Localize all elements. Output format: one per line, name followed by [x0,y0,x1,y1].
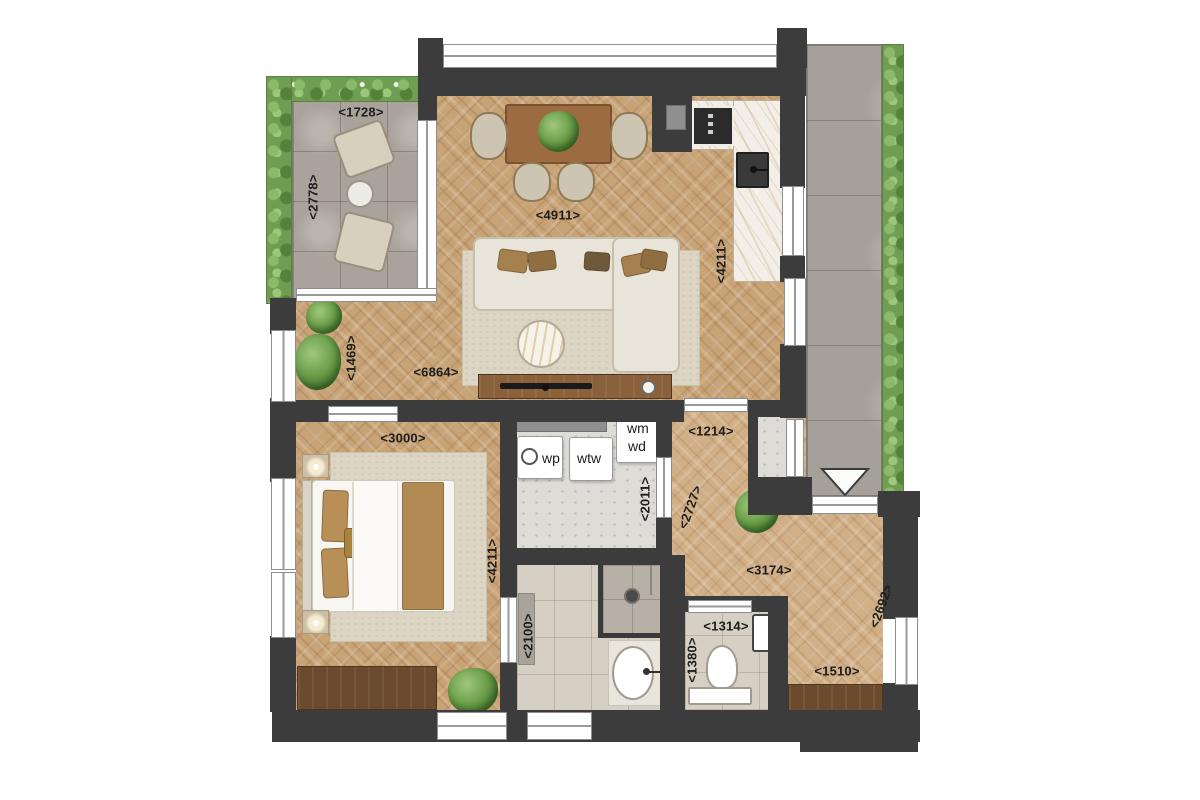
storage-door [786,419,804,477]
kitchen-faucet-dot [750,166,757,173]
terrace-right-floor [806,44,882,496]
wall [418,38,443,66]
bedroom-wardrobe [297,666,437,710]
hall-cabinet [788,684,883,712]
bathroom-faucet-dot [643,668,650,675]
bedroom-window-bottom [437,712,507,740]
dim-label: <1380> [685,637,700,682]
heat-pump-label: wp [542,450,560,466]
wall [272,710,920,742]
bed-headboard [302,480,312,612]
wall [878,491,920,517]
sofa-pillow [497,248,530,274]
sofa-pillow [583,251,610,272]
tv-mount-dot [542,384,549,391]
entry-nook-floor [758,415,786,478]
terrace-sliding-door [417,120,437,298]
wall-shaft [666,105,686,130]
cooktop-controls [708,114,713,138]
wall [780,66,805,188]
dim-label: <1214> [688,424,733,439]
hall-living-door [684,398,748,412]
front-entrance-door [812,496,878,514]
sofa-pillow [640,248,669,272]
bathroom-door [500,597,517,663]
wall [660,555,685,712]
dryer-label: wd [628,438,646,454]
dining-chair [513,162,551,202]
wall [500,548,665,565]
toilet-cistern [688,687,752,705]
dim-label: <1728> [338,105,383,120]
dim-label: <3174> [746,563,791,578]
hedge-right [882,44,904,496]
terrace-sliding-door [296,288,437,302]
bed-runner [402,482,444,610]
dining-chair [470,112,508,160]
terrace-side-table [346,180,374,208]
bedroom-window-left [271,572,296,638]
toilet-door [688,600,752,613]
dim-label: <4211> [485,539,500,584]
wall [748,415,758,483]
hedge-left [266,76,292,304]
wall [800,742,918,752]
living-window-right [784,278,806,346]
cooktop [692,106,734,146]
wall [656,412,672,457]
dim-label: <1510> [814,664,859,679]
wall [777,28,807,68]
entrance-marker-icon [818,466,872,498]
dim-label: <4211> [714,239,729,284]
dim-label: <1469> [344,335,359,380]
dim-label: <4911> [536,208,581,223]
dim-label: <2011> [638,477,653,522]
wall [500,663,517,712]
bedroom-sliding-door [328,406,398,422]
dining-chair [557,162,595,202]
wall [768,596,788,712]
floor-plan: wp wtw wm wd [0,0,1200,800]
heat-pump-icon [521,448,538,465]
heat-recovery-label: wtw [577,450,601,466]
dim-label: <1314> [703,619,748,634]
bathroom-window-bottom [527,712,592,740]
kitchen-terrace-door [782,186,804,256]
wall [418,64,806,96]
shower-drain-icon [624,588,640,604]
dim-label: <6864> [413,365,458,380]
dim-label: <2778> [306,174,321,219]
bed-sheet-fold [352,482,398,610]
dim-label: <2100> [521,613,536,658]
wall [270,298,296,334]
wall [418,94,437,122]
wall [270,636,296,712]
shower-rod [650,565,652,595]
nightstand-lamp-icon [305,456,327,478]
tech-room-door [656,457,672,518]
dining-chair [610,112,648,160]
living-window-left [271,330,296,402]
speaker-icon [641,380,656,395]
toilet-bowl [706,645,738,689]
coffee-table [517,320,565,368]
bedroom-window-left [271,478,296,570]
dim-label: <3000> [380,431,425,446]
hall-window-right [895,617,918,685]
wall [748,477,812,515]
window-top-band [443,44,777,68]
wall [270,398,296,482]
nightstand-lamp-icon [305,612,327,634]
washer-label: wm [627,420,649,436]
sofa-pillow [527,249,557,272]
wall [500,420,517,599]
